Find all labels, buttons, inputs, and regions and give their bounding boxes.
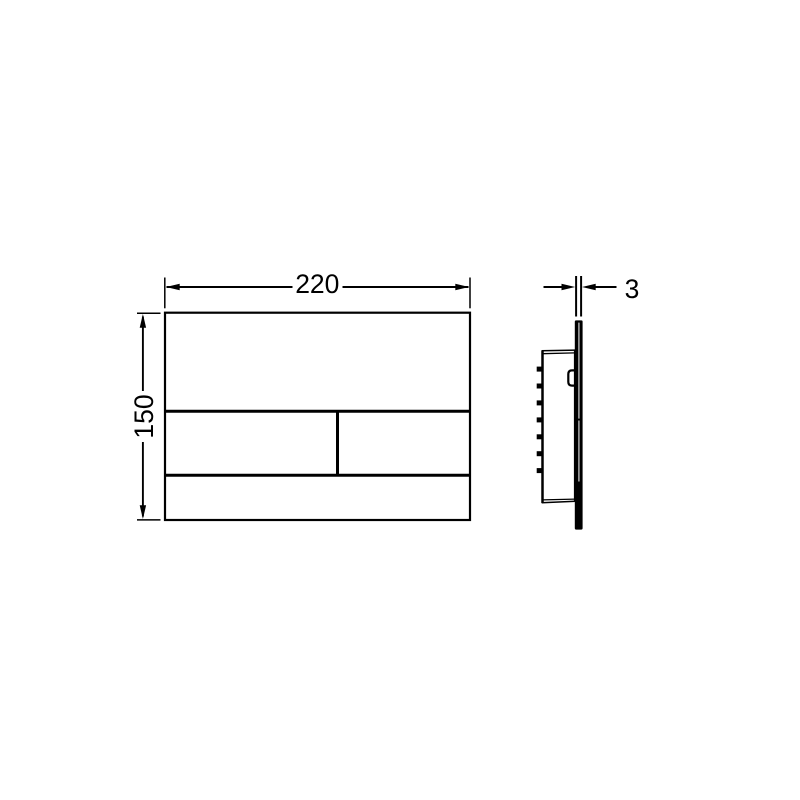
svg-text:3: 3 [625, 274, 640, 304]
svg-text:150: 150 [129, 394, 159, 438]
svg-text:220: 220 [295, 269, 339, 299]
